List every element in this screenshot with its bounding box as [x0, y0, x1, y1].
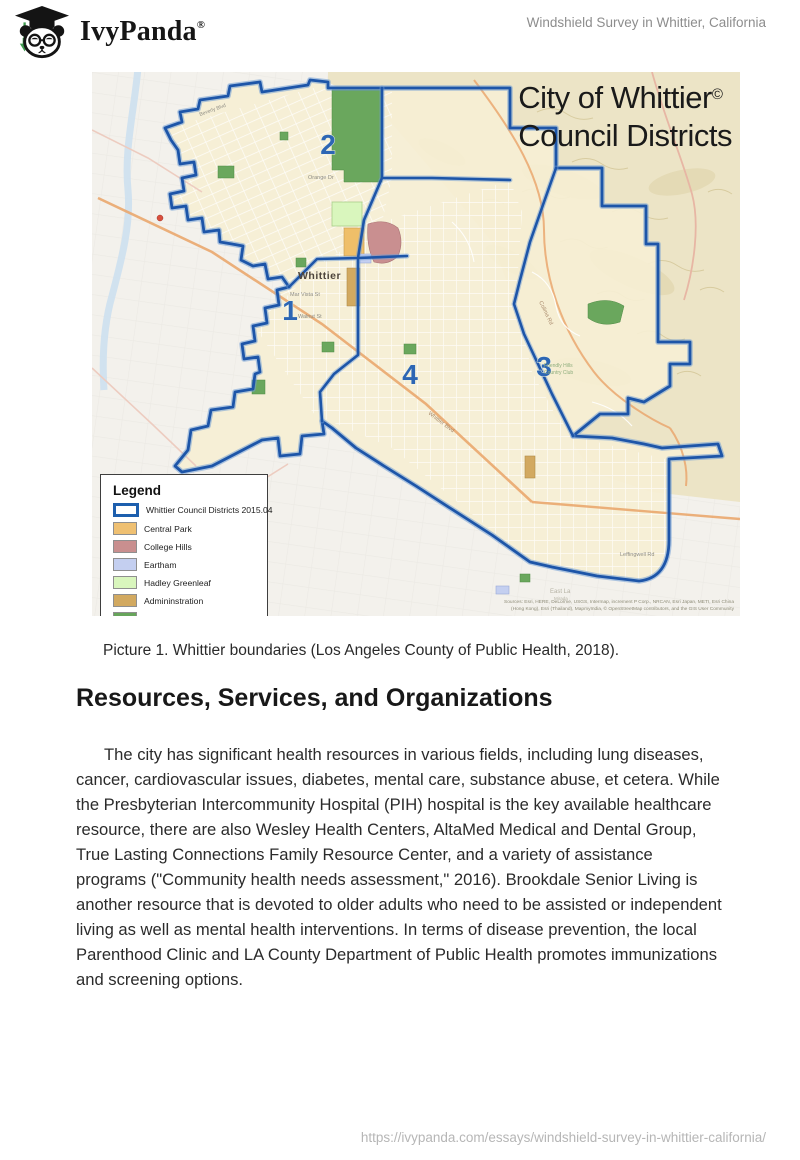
copyright-mark: © [712, 86, 723, 103]
legend-swatch [113, 503, 139, 517]
svg-text:Country Club: Country Club [544, 370, 573, 376]
svg-text:Friendly Hills: Friendly Hills [544, 363, 573, 369]
poi-marker [157, 215, 163, 221]
city-name-label: Whittier [298, 270, 341, 282]
figure-caption: Picture 1. Whittier boundaries (Los Ange… [103, 642, 619, 660]
registered-mark: ® [197, 19, 205, 31]
legend-swatch [113, 522, 137, 535]
brand-name[interactable]: IvyPanda® [80, 16, 205, 48]
legend-swatch [113, 612, 137, 616]
legend-item-administration: Admininstration [113, 594, 259, 607]
legend-item-eartham: Eartham [113, 558, 259, 571]
map-legend: Legend Whittier Council Districts 2015.0… [100, 474, 268, 616]
legend-item-parks: Parks [113, 612, 259, 616]
section-heading: Resources, Services, and Organizations [76, 684, 553, 713]
map-title: City of Whittier© Council Districts [518, 76, 732, 155]
svg-text:(Hong Kong), Esri (Thailand),: (Hong Kong), Esri (Thailand), MapmyIndia… [511, 605, 735, 612]
svg-text:Walnut St: Walnut St [298, 314, 322, 320]
legend-title: Legend [113, 483, 259, 498]
district-1-label: 1 [282, 295, 298, 326]
svg-text:Orange Dr: Orange Dr [308, 175, 334, 181]
legend-swatch [113, 558, 137, 571]
document-page: IvyPanda® Windshield Survey in Whittier,… [0, 0, 800, 1160]
document-title: Windshield Survey in Whittier, Californi… [527, 15, 766, 30]
footer-url[interactable]: https://ivypanda.com/essays/windshield-s… [361, 1130, 766, 1145]
hadley-greenleaf-patch [332, 202, 362, 226]
svg-text:East La: East La [550, 589, 571, 595]
panda-face-icon [20, 25, 64, 56]
svg-text:Mar Vista St: Mar Vista St [290, 292, 320, 298]
eartham-patch-2 [496, 586, 509, 594]
district-4-label: 4 [402, 359, 418, 390]
legend-swatch [113, 594, 137, 607]
whittier-districts-map: 1 2 3 4 Whittier Orange Dr Mar Vista St … [92, 72, 740, 616]
administration-patch-2 [525, 456, 535, 478]
legend-swatch [113, 540, 137, 553]
body-paragraph: The city has significant health resource… [76, 742, 724, 992]
legend-item-districts: Whittier Council Districts 2015.04 [113, 503, 259, 517]
legend-item-college-hills: College Hills [113, 540, 259, 553]
legend-swatch [113, 576, 137, 589]
svg-text:Sources: Esri, HERE, DeLorme,: Sources: Esri, HERE, DeLorme, USGS, Inte… [504, 599, 734, 605]
legend-item-hadley-greenleaf: Hadley Greenleaf [113, 576, 259, 589]
svg-text:Leffingwell Rd: Leffingwell Rd [620, 552, 654, 558]
ivypanda-logo[interactable] [10, 5, 74, 61]
district-2-label: 2 [320, 129, 336, 160]
legend-item-central-park: Central Park [113, 522, 259, 535]
